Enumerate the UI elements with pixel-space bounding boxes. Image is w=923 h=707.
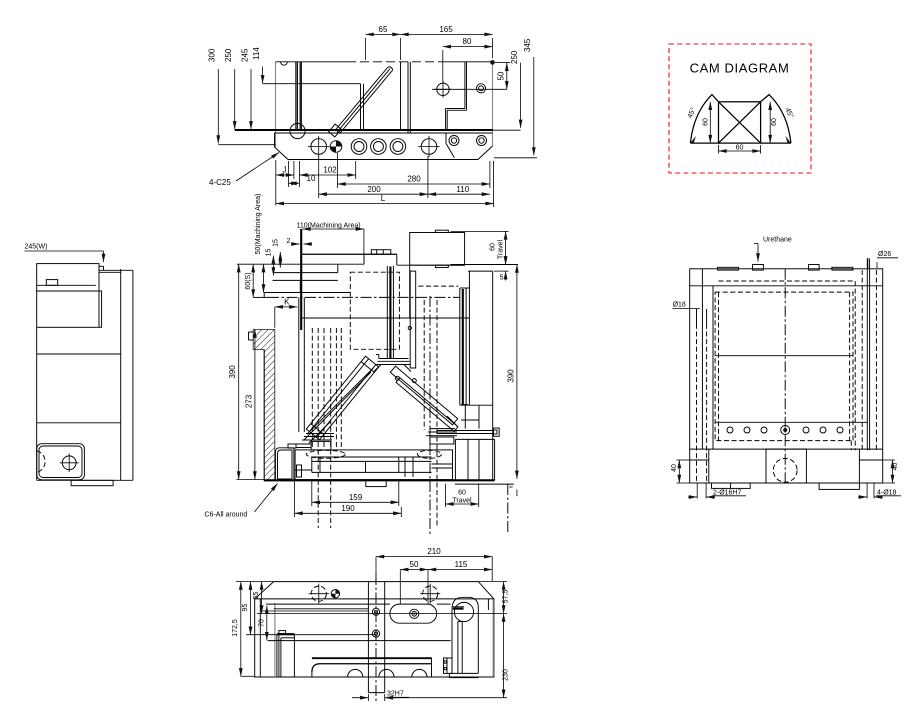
svg-text:15: 15: [273, 239, 280, 247]
svg-text:245(W): 245(W): [25, 244, 48, 251]
svg-text:L: L: [381, 194, 386, 203]
svg-text:C6-All around: C6-All around: [205, 512, 248, 519]
svg-text:55: 55: [253, 592, 260, 600]
svg-text:172,5: 172,5: [232, 619, 239, 637]
svg-text:K: K: [284, 298, 290, 307]
svg-text:245: 245: [240, 48, 249, 62]
svg-text:65: 65: [379, 25, 388, 34]
svg-text:165: 165: [439, 25, 453, 34]
svg-text:210: 210: [427, 547, 441, 556]
svg-text:60: 60: [490, 243, 497, 251]
svg-text:CAM DIAGRAM: CAM DIAGRAM: [690, 61, 790, 76]
svg-text:200: 200: [367, 185, 381, 194]
svg-text:J: J: [283, 166, 287, 175]
svg-text:Ø26: Ø26: [878, 251, 891, 258]
svg-text:110: 110: [456, 185, 469, 194]
svg-text:50: 50: [496, 71, 505, 80]
svg-text:Travel: Travel: [452, 498, 472, 505]
svg-text:110(Machining Area): 110(Machining Area): [297, 223, 361, 230]
svg-text:60: 60: [458, 490, 466, 497]
svg-text:4-C25: 4-C25: [209, 178, 231, 187]
svg-text:60: 60: [703, 118, 710, 126]
svg-text:50: 50: [410, 560, 419, 569]
svg-text:390: 390: [506, 369, 515, 383]
svg-text:Ø18: Ø18: [673, 302, 686, 309]
svg-text:345: 345: [523, 38, 532, 52]
svg-text:95: 95: [242, 604, 249, 612]
svg-text:102: 102: [323, 166, 337, 175]
svg-text:2: 2: [287, 238, 291, 245]
svg-text:280: 280: [407, 175, 421, 184]
svg-text:70: 70: [258, 619, 265, 627]
svg-text:60(S): 60(S): [245, 272, 252, 289]
svg-text:50(Machining Area): 50(Machining Area): [255, 194, 262, 255]
svg-text:390: 390: [228, 365, 237, 379]
svg-text:15: 15: [266, 249, 273, 257]
svg-text:40: 40: [671, 464, 678, 472]
svg-text:300: 300: [208, 48, 217, 62]
svg-text:159: 159: [349, 493, 363, 502]
svg-text:Urethane: Urethane: [763, 237, 792, 244]
svg-text:5: 5: [500, 275, 504, 282]
svg-text:32H7: 32H7: [387, 691, 404, 698]
svg-text:250: 250: [510, 50, 519, 64]
svg-text:10: 10: [307, 174, 316, 183]
svg-text:Travel: Travel: [498, 239, 505, 259]
svg-text:273: 273: [244, 394, 253, 408]
svg-text:60: 60: [771, 118, 778, 126]
svg-text:114: 114: [252, 47, 261, 60]
svg-text:115: 115: [455, 560, 468, 569]
svg-text:60: 60: [736, 145, 744, 152]
svg-text:190: 190: [341, 504, 355, 513]
svg-text:250: 250: [224, 48, 233, 62]
svg-text:80: 80: [463, 37, 472, 46]
